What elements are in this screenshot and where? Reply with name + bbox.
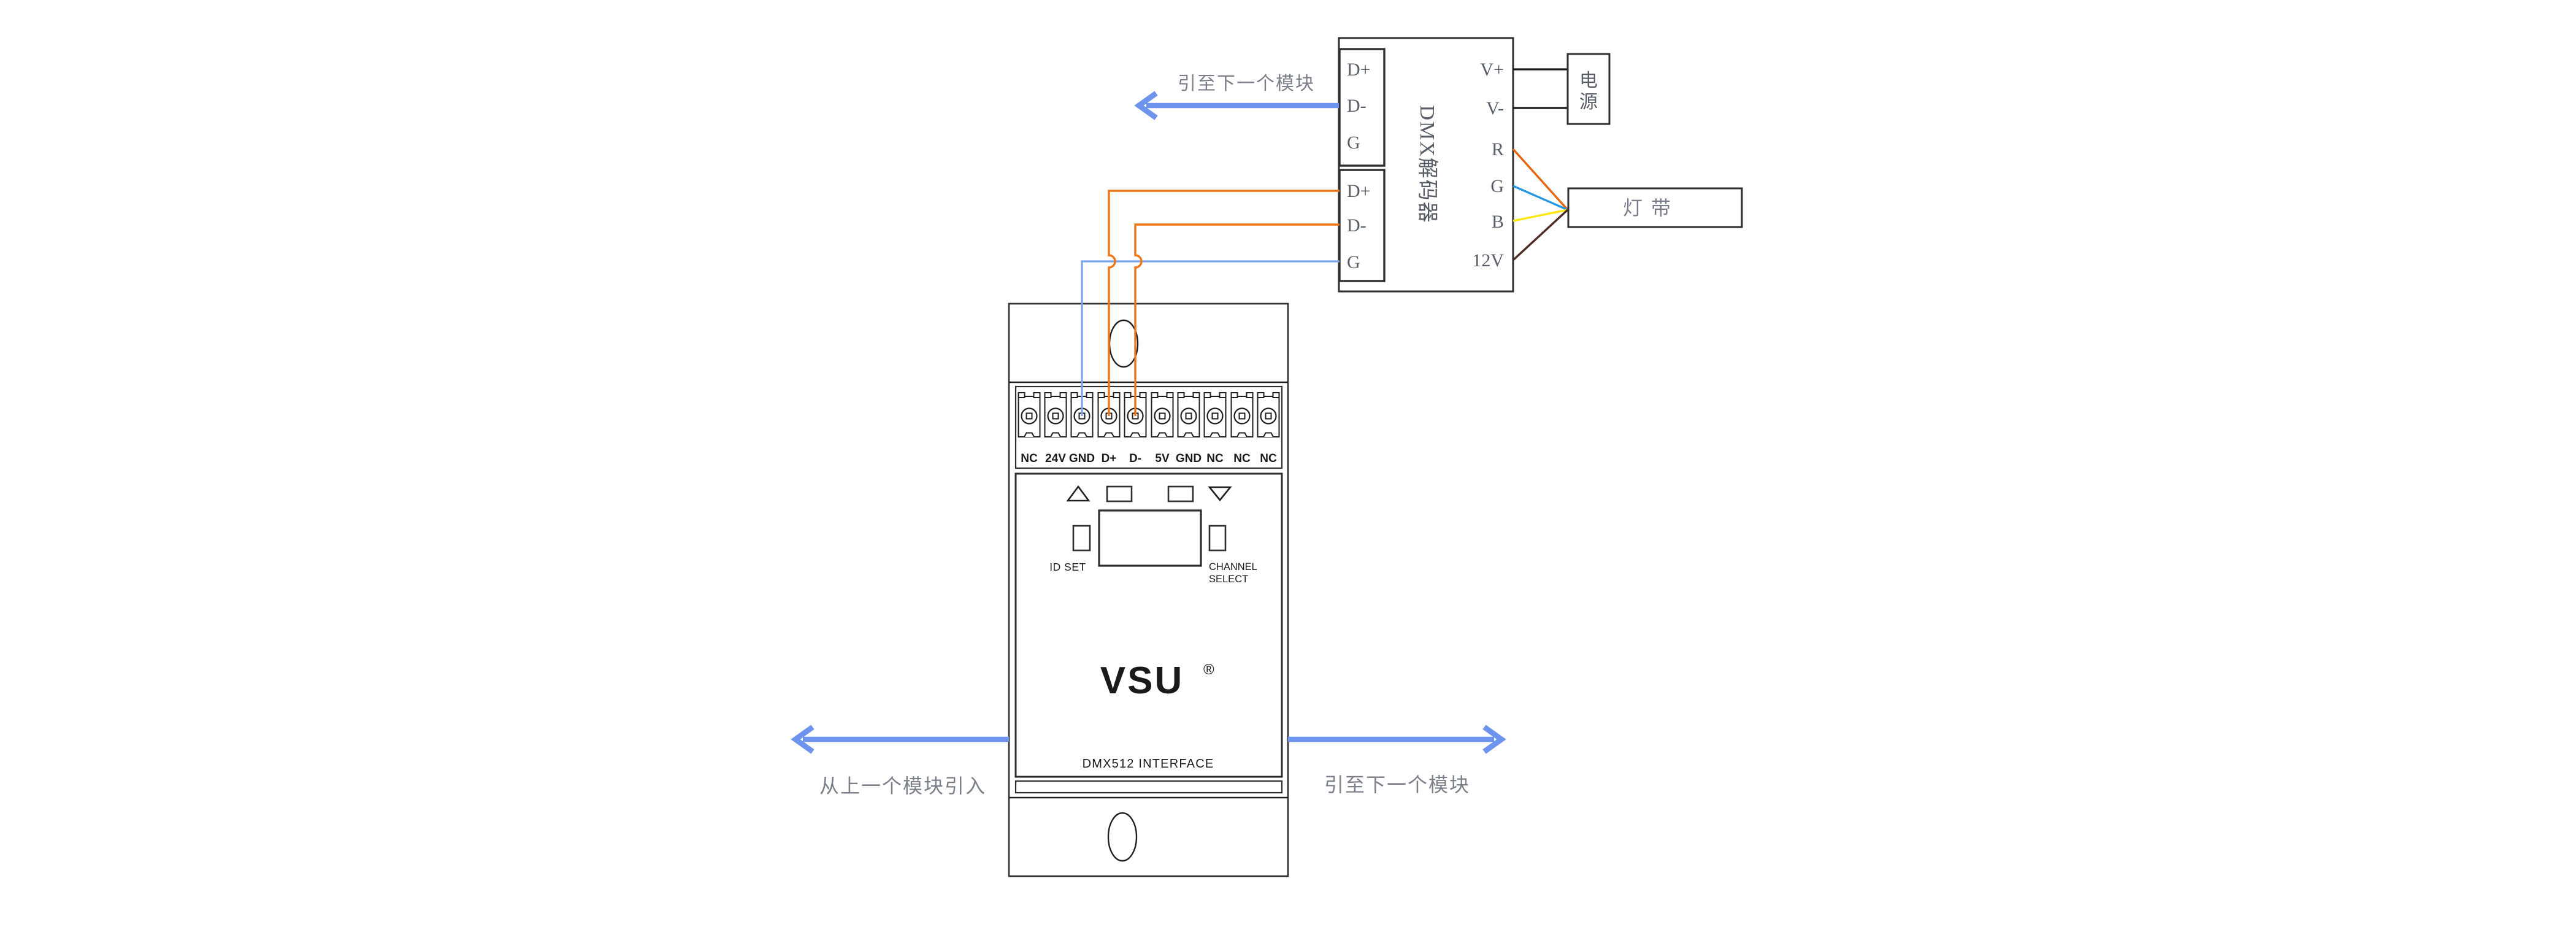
terminal-clamp	[1232, 393, 1253, 437]
decoder-upper-dminus: D-	[1347, 96, 1367, 116]
decoder-title: DMX解码器	[1416, 105, 1439, 223]
decoder-upper-g: G	[1347, 133, 1360, 153]
wire-12v	[1513, 210, 1568, 260]
wire-b	[1513, 210, 1568, 221]
wiring-diagram-page: NC 24V GND D+ D- 5V GND NC NC NC	[0, 0, 2576, 932]
power-supply: 电 源	[1513, 54, 1609, 124]
module-subtitle: DMX512 INTERFACE	[1083, 757, 1214, 771]
terminal-block: NC 24V GND D+ D- 5V GND NC NC NC	[1016, 387, 1282, 468]
terminal-clamp	[1152, 393, 1173, 437]
module-bottom-mounting-slot	[1108, 813, 1137, 861]
channel-select-label-line2: SELECT	[1209, 574, 1248, 585]
terminal-label-dplus: D+	[1102, 452, 1117, 465]
terminal-label-nc4: NC	[1260, 452, 1277, 465]
wire-r	[1513, 149, 1568, 210]
dmx512-interface-module: NC 24V GND D+ D- 5V GND NC NC NC	[1009, 304, 1288, 876]
led-strip-label: 灯带	[1623, 197, 1679, 219]
id-set-button	[1073, 526, 1090, 550]
dmx-decoder: D+ D- G D+ D- G V+ V- R G B 12V DMX解码器	[1339, 38, 1513, 291]
decoder-lower-dplus: D+	[1347, 181, 1371, 201]
channel-select-button	[1209, 526, 1225, 550]
digital-display	[1099, 510, 1201, 566]
terminal-clamp	[1258, 393, 1279, 437]
decoder-label-g: G	[1490, 176, 1504, 196]
decoder-label-vminus: V-	[1486, 98, 1504, 118]
top-out-arrow	[1139, 93, 1339, 118]
decoder-lower-dminus: D-	[1347, 215, 1367, 236]
decoder-label-b: B	[1492, 212, 1504, 232]
wiring-diagram: NC 24V GND D+ D- 5V GND NC NC NC	[0, 0, 2576, 932]
brand-logo: VSU	[1100, 660, 1184, 702]
bottom-out-note: 引至下一个模块	[1324, 774, 1470, 796]
terminal-label-dminus: D-	[1129, 452, 1141, 465]
terminal-label-5v: 5V	[1155, 452, 1170, 465]
front-panel-lower-strip	[1016, 781, 1282, 793]
wire-g	[1513, 186, 1568, 210]
terminal-label-gnd1: GND	[1069, 452, 1095, 465]
front-panel: ID SET CHANNEL SELECT VSU ® DMX512 INTER…	[1016, 474, 1282, 793]
module-top-mounting-slot	[1110, 320, 1138, 367]
channel-select-label-line1: CHANNEL	[1209, 561, 1257, 572]
terminal-label-nc3: NC	[1233, 452, 1251, 465]
terminal-clamp	[1019, 393, 1040, 437]
panel-button-1	[1107, 487, 1132, 501]
top-out-note: 引至下一个模块	[1178, 74, 1315, 94]
decoder-upper-dplus: D+	[1347, 60, 1371, 80]
bottom-in-note: 从上一个模块引入	[819, 775, 986, 797]
terminal-label-nc2: NC	[1206, 452, 1224, 465]
id-set-label: ID SET	[1049, 561, 1086, 573]
power-supply-label-char1: 电	[1579, 71, 1598, 91]
power-supply-label-char2: 源	[1579, 92, 1598, 112]
led-strip: 灯带	[1513, 149, 1742, 260]
decoder-label-12v: 12V	[1472, 250, 1504, 271]
decoder-lower-g: G	[1347, 252, 1360, 272]
terminal-clamp	[1045, 393, 1067, 437]
bottom-in-arrow	[795, 727, 1009, 752]
terminal-label-gnd2: GND	[1176, 452, 1202, 465]
terminal-clamp	[1178, 393, 1200, 437]
panel-button-2	[1168, 487, 1193, 501]
terminal-label-nc1: NC	[1021, 452, 1038, 465]
decoder-label-vplus: V+	[1480, 60, 1504, 80]
terminal-clamp	[1205, 393, 1226, 437]
bottom-out-arrow	[1288, 727, 1501, 752]
decoder-label-r: R	[1492, 139, 1504, 160]
terminal-label-24v: 24V	[1045, 452, 1066, 465]
brand-registered-mark: ®	[1203, 661, 1214, 678]
